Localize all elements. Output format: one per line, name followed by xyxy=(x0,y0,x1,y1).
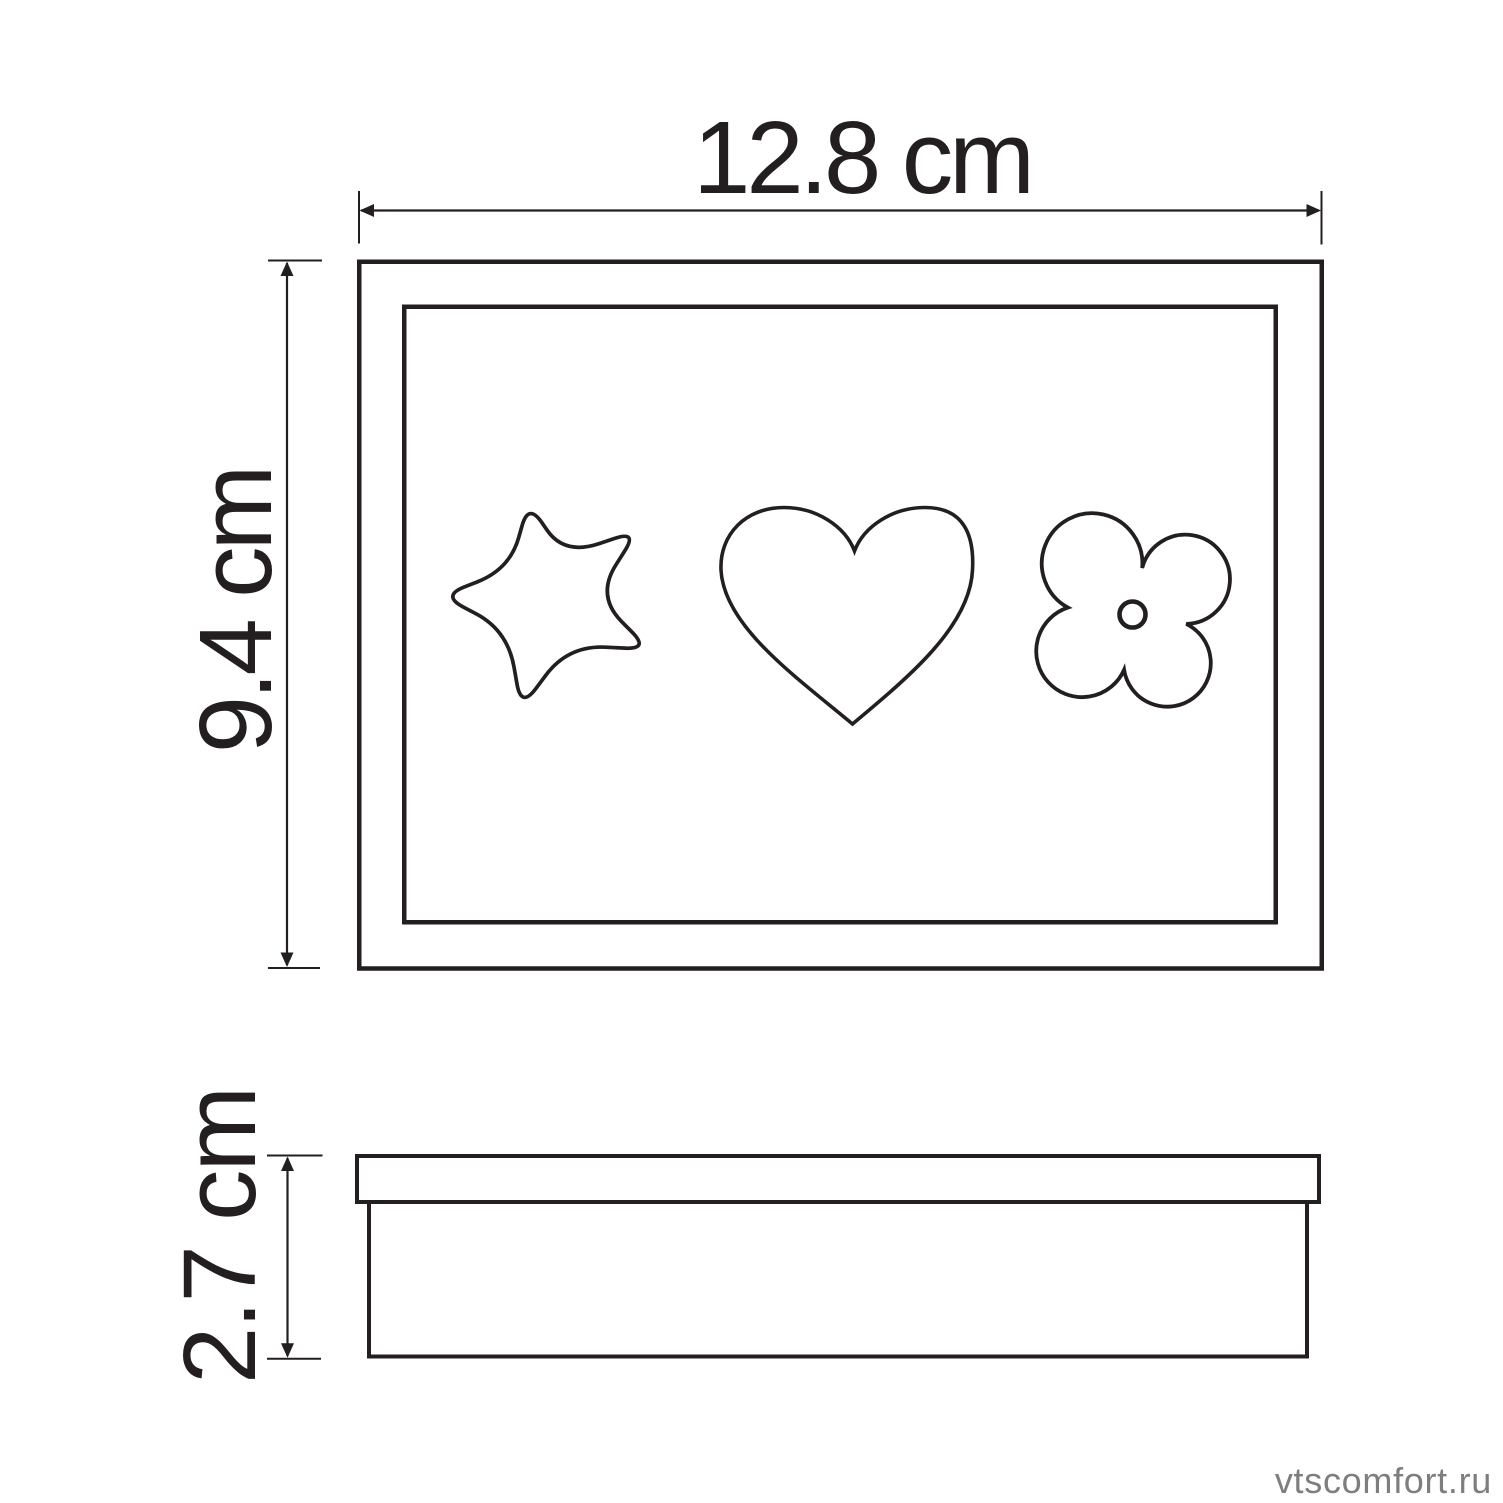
svg-text:9.4 cm: 9.4 cm xyxy=(178,469,293,754)
svg-text:2.7 cm: 2.7 cm xyxy=(162,1088,277,1384)
svg-text:vtscomfort.ru: vtscomfort.ru xyxy=(1275,1460,1492,1501)
svg-text:12.8 cm: 12.8 cm xyxy=(693,100,1031,215)
